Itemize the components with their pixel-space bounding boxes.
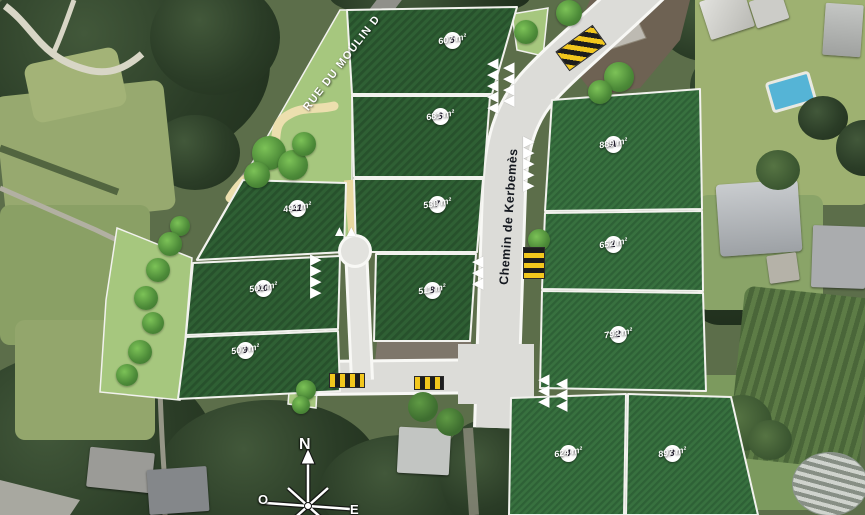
site-plan-overlay <box>0 0 865 515</box>
green-zone-entrance <box>512 8 548 56</box>
boundary-markers: ◀◀◀◀ <box>503 62 519 106</box>
subdivision-site-plan: ◀◀◀◀◀ ◀◀◀◀ ◀◀◀ ▶▶▶▶▶ ◀◀◀ ◀◀◀ ▶▶▶▶ ▲▲ Che… <box>0 0 865 515</box>
compass-north-label: N <box>299 436 311 454</box>
plot-8-area <box>374 254 476 341</box>
plot-6-area <box>352 96 490 177</box>
boundary-markers: ▶▶▶▶▶ <box>523 136 539 191</box>
compass-east-label: E <box>350 502 359 515</box>
boundary-markers: ◀◀◀ <box>538 374 554 407</box>
plot-11-area <box>197 180 346 260</box>
shared-driveway <box>338 234 372 380</box>
boundary-markers: ◀◀◀ <box>556 378 572 411</box>
compass-west-label: O <box>258 492 268 507</box>
plot-7-area <box>354 179 483 252</box>
plot-1-area <box>542 211 703 291</box>
speed-table-marking <box>329 373 365 388</box>
speed-table-marking <box>523 247 545 279</box>
plot-A-area <box>545 89 702 211</box>
boundary-markers: ▶▶▶▶ <box>310 254 326 298</box>
green-zone-west <box>100 228 192 400</box>
plot-3-area <box>626 394 758 515</box>
road-junction <box>458 344 534 404</box>
boundary-markers: ▲▲ <box>332 226 356 237</box>
boundary-markers: ◀◀◀◀◀ <box>487 58 503 113</box>
compass-rose <box>266 448 350 515</box>
speed-table-marking <box>414 376 444 390</box>
boundary-markers: ◀◀◀ <box>472 256 488 289</box>
